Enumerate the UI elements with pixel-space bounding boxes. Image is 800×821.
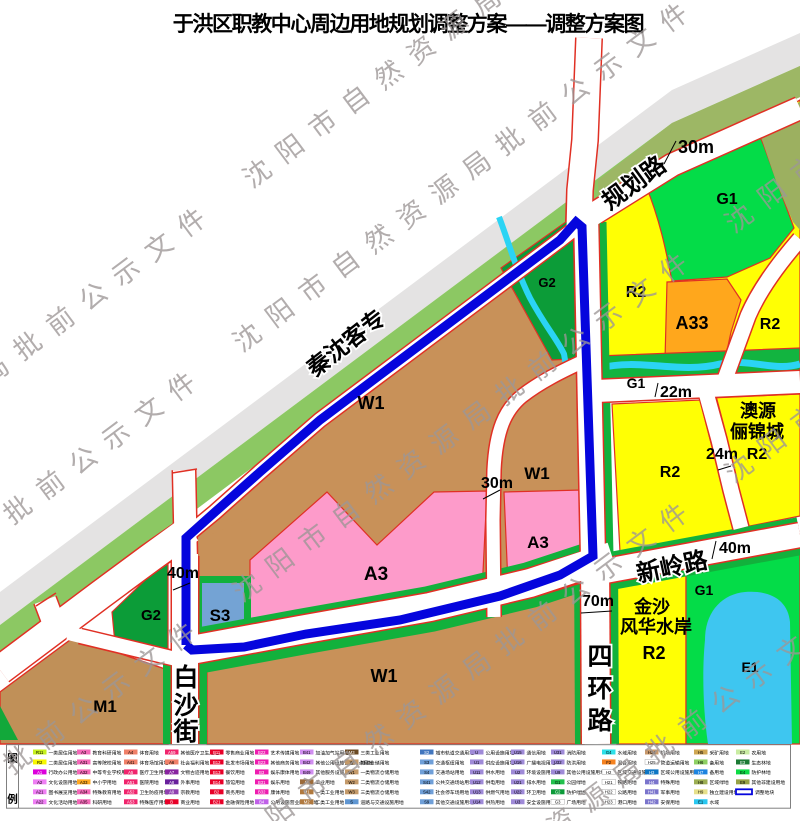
svg-text:供应设施用地: 供应设施用地 [486, 759, 515, 766]
svg-text:B21: B21 [213, 800, 221, 805]
svg-text:U31: U31 [554, 750, 562, 755]
svg-text:U12: U12 [473, 780, 481, 785]
svg-text:G2: G2 [555, 790, 561, 795]
svg-text:公园绿地: 公园绿地 [567, 779, 586, 786]
svg-text:文化活动用地: 文化活动用地 [49, 799, 78, 806]
svg-text:外事用地: 外事用地 [181, 779, 200, 786]
svg-text:教育科研用地: 教育科研用地 [93, 749, 122, 756]
svg-text:区域绿地: 区域绿地 [710, 779, 729, 786]
svg-text:H9: H9 [698, 790, 704, 795]
svg-text:G1: G1 [555, 780, 561, 785]
svg-text:A3: A3 [81, 750, 87, 755]
svg-text:澳源: 澳源 [740, 400, 776, 421]
svg-text:U13: U13 [473, 790, 481, 795]
svg-text:采矿用地: 采矿用地 [710, 749, 729, 756]
svg-text:A52: A52 [127, 790, 135, 795]
svg-text:三类物流仓储用地: 三类物流仓储用地 [361, 789, 400, 796]
svg-text:零售商业用地: 零售商业用地 [226, 749, 255, 756]
svg-text:E1: E1 [698, 800, 704, 805]
svg-text:S42: S42 [423, 790, 431, 795]
svg-text:U2: U2 [515, 770, 521, 775]
svg-text:供电用地: 供电用地 [486, 779, 505, 786]
svg-text:商业用地: 商业用地 [181, 799, 200, 806]
svg-text:30m: 30m [678, 137, 714, 157]
svg-text:E9: E9 [740, 780, 746, 785]
svg-text:S41: S41 [423, 780, 431, 785]
svg-text:R2: R2 [660, 464, 681, 481]
svg-text:宗教用地: 宗教用地 [181, 789, 200, 796]
svg-text:B14: B14 [213, 780, 221, 785]
svg-text:供燃气用地: 供燃气用地 [486, 789, 510, 796]
svg-text:体育场馆用地: 体育场馆用地 [140, 759, 169, 766]
svg-text:B22: B22 [258, 750, 266, 755]
svg-text:港口用地: 港口用地 [618, 799, 637, 806]
svg-text:A22: A22 [36, 800, 44, 805]
svg-text:卫生防疫用地: 卫生防疫用地 [140, 789, 169, 796]
svg-text:农用地: 农用地 [752, 749, 767, 756]
svg-text:医院用地: 医院用地 [140, 779, 159, 786]
svg-text:A41: A41 [127, 760, 135, 765]
svg-text:R2: R2 [642, 643, 665, 663]
svg-text:文物古迹用地: 文物古迹用地 [181, 769, 210, 776]
svg-text:A33: A33 [80, 780, 88, 785]
svg-text:G2: G2 [141, 607, 161, 624]
svg-text:防洪用地: 防洪用地 [567, 759, 586, 766]
svg-text:R2: R2 [760, 316, 781, 333]
svg-text:30m: 30m [481, 475, 513, 492]
svg-text:独立建设用地: 独立建设用地 [710, 789, 739, 796]
svg-text:B23: B23 [258, 760, 266, 765]
svg-text:A34: A34 [80, 790, 88, 795]
svg-text:其他非建设用地: 其他非建设用地 [752, 779, 786, 786]
svg-text:医疗卫生用地: 医疗卫生用地 [140, 769, 169, 776]
svg-text:S2: S2 [424, 750, 430, 755]
svg-text:防护林地: 防护林地 [752, 769, 771, 776]
svg-text:军事用地: 军事用地 [661, 789, 680, 796]
svg-text:水域: 水域 [710, 799, 720, 806]
svg-text:排水用地: 排水用地 [527, 779, 546, 786]
svg-text:U14: U14 [473, 800, 481, 805]
svg-text:H8: H8 [698, 780, 704, 785]
svg-text:B31: B31 [258, 780, 266, 785]
svg-text:A6: A6 [169, 760, 175, 765]
svg-text:U16: U16 [514, 760, 522, 765]
svg-text:S9: S9 [424, 800, 430, 805]
svg-text:A9: A9 [169, 790, 175, 795]
svg-text:B2: B2 [214, 790, 220, 795]
svg-text:H41: H41 [648, 790, 656, 795]
svg-text:城市轨道交通用地: 城市轨道交通用地 [436, 749, 475, 756]
svg-text:A31: A31 [80, 760, 88, 765]
svg-text:公用设施用地: 公用设施用地 [486, 749, 515, 756]
svg-text:二类居住用地: 二类居住用地 [49, 759, 78, 766]
svg-text:图书展览用地: 图书展览用地 [49, 789, 78, 796]
svg-text:通信用地: 通信用地 [527, 749, 546, 756]
svg-text:例: 例 [7, 793, 18, 806]
svg-text:U32: U32 [554, 760, 562, 765]
svg-text:B: B [170, 800, 173, 805]
svg-text:科研用地: 科研用地 [93, 799, 112, 806]
svg-text:G4: G4 [606, 750, 612, 755]
svg-text:区域公用设施用地: 区域公用设施用地 [661, 769, 700, 776]
svg-text:金融保险用地: 金融保险用地 [226, 799, 255, 806]
svg-text:S3: S3 [424, 760, 430, 765]
svg-text:A5: A5 [128, 770, 134, 775]
svg-text:路: 路 [587, 707, 613, 735]
svg-text:特殊医疗用地: 特殊医疗用地 [140, 799, 169, 806]
svg-text:特殊教育用地: 特殊教育用地 [93, 789, 122, 796]
svg-text:其他交通设施用地: 其他交通设施用地 [436, 799, 475, 806]
svg-text:特殊用地: 特殊用地 [661, 779, 680, 786]
svg-text:社会福利用地: 社会福利用地 [181, 759, 210, 766]
svg-text:G1: G1 [627, 375, 646, 391]
svg-text:文化设施用地: 文化设施用地 [49, 779, 78, 786]
svg-text:W1: W1 [358, 393, 385, 413]
svg-text:娱乐康体用地: 娱乐康体用地 [271, 769, 300, 776]
svg-text:沙: 沙 [173, 692, 198, 720]
svg-text:S4: S4 [424, 770, 430, 775]
svg-text:其他商务用地: 其他商务用地 [271, 759, 300, 766]
svg-text:B3: B3 [259, 770, 265, 775]
svg-text:H7: H7 [698, 770, 704, 775]
svg-text:备用地: 备用地 [710, 769, 725, 776]
svg-text:U15: U15 [514, 750, 522, 755]
svg-text:体育用地: 体育用地 [140, 749, 159, 756]
svg-text:B13: B13 [213, 770, 221, 775]
svg-text:四: 四 [587, 643, 612, 671]
svg-text:H42: H42 [648, 800, 656, 805]
svg-text:W2: W2 [349, 780, 356, 785]
svg-text:E3: E3 [740, 760, 746, 765]
svg-text:备用地: 备用地 [710, 759, 725, 766]
svg-text:W1: W1 [524, 464, 550, 483]
svg-text:生态林地: 生态林地 [752, 759, 771, 766]
svg-text:A32: A32 [80, 770, 88, 775]
svg-text:A1: A1 [37, 770, 43, 775]
svg-text:B42: B42 [303, 760, 311, 765]
svg-text:消防用地: 消防用地 [567, 749, 586, 756]
svg-text:U: U [475, 750, 478, 755]
svg-text:风华水岸: 风华水岸 [620, 616, 692, 637]
svg-text:街: 街 [172, 717, 198, 746]
svg-text:U3: U3 [515, 800, 521, 805]
svg-text:U9: U9 [555, 770, 561, 775]
svg-text:H5: H5 [698, 750, 704, 755]
svg-text:A2: A2 [37, 780, 43, 785]
svg-text:B4: B4 [259, 800, 265, 805]
svg-text:U11: U11 [473, 770, 481, 775]
svg-text:H4: H4 [649, 780, 655, 785]
svg-text:中小学用地: 中小学用地 [93, 779, 117, 786]
svg-text:A7: A7 [169, 770, 175, 775]
svg-text:餐饮用地: 餐饮用地 [226, 769, 245, 776]
svg-text:H6: H6 [698, 760, 704, 765]
svg-text:B41: B41 [303, 750, 311, 755]
svg-text:社会停车场用地: 社会停车场用地 [436, 789, 470, 796]
svg-text:供热用地: 供热用地 [486, 799, 505, 806]
svg-text:U21: U21 [514, 780, 522, 785]
svg-text:S: S [350, 800, 353, 805]
svg-text:B11: B11 [213, 750, 221, 755]
svg-text:一类物流仓储用地: 一类物流仓储用地 [361, 769, 400, 776]
svg-text:G1: G1 [695, 582, 714, 598]
svg-text:W1: W1 [371, 666, 398, 686]
svg-text:U1: U1 [474, 760, 480, 765]
svg-text:批发市场用地: 批发市场用地 [226, 759, 255, 766]
svg-text:高等院校用地: 高等院校用地 [93, 759, 122, 766]
svg-text:环卫用地: 环卫用地 [527, 789, 546, 796]
svg-text:调整地块: 调整地块 [755, 789, 774, 796]
svg-text:交通场站用地: 交通场站用地 [436, 769, 465, 776]
svg-text:道路与交通设施用地: 道路与交通设施用地 [361, 799, 404, 806]
svg-text:娱乐用地: 娱乐用地 [271, 779, 290, 786]
svg-text:B32: B32 [258, 790, 266, 795]
svg-text:G2: G2 [538, 275, 555, 290]
svg-text:A4: A4 [128, 750, 134, 755]
svg-text:交通枢纽用地: 交通枢纽用地 [436, 759, 465, 766]
svg-text:行政办公用地: 行政办公用地 [49, 769, 78, 776]
svg-text:F2: F2 [606, 760, 612, 765]
svg-text:A8: A8 [169, 780, 175, 785]
svg-text:安保用地: 安保用地 [661, 799, 680, 806]
svg-text:供水用地: 供水用地 [486, 769, 505, 776]
svg-text:金沙: 金沙 [633, 596, 670, 617]
svg-text:白: 白 [173, 663, 198, 692]
svg-text:艺术传媒用地: 艺术传媒用地 [271, 749, 300, 756]
svg-text:22m: 22m [660, 384, 692, 401]
svg-text:A21: A21 [36, 790, 44, 795]
svg-text:公共交通场站用地: 公共交通场站用地 [436, 779, 475, 786]
svg-text:40m: 40m [167, 565, 199, 582]
svg-text:二类物流仓储用地: 二类物流仓储用地 [361, 779, 400, 786]
svg-text:A53: A53 [127, 800, 135, 805]
svg-text:A33: A33 [675, 313, 708, 333]
svg-text:旅馆用地: 旅馆用地 [226, 779, 245, 786]
svg-text:于洪区职教中心周边用地规划调整方案——调整方案图: 于洪区职教中心周边用地规划调整方案——调整方案图 [173, 12, 644, 36]
svg-text:A35: A35 [80, 800, 88, 805]
svg-text:U22: U22 [514, 790, 522, 795]
svg-text:A3: A3 [364, 564, 388, 585]
svg-text:W3: W3 [349, 790, 356, 795]
svg-text:A3: A3 [527, 533, 549, 552]
svg-text:A59: A59 [168, 750, 176, 755]
svg-text:商务用地: 商务用地 [226, 789, 245, 796]
svg-text:E2: E2 [740, 750, 746, 755]
svg-text:B12: B12 [213, 760, 221, 765]
svg-text:A51: A51 [127, 780, 135, 785]
svg-text:环: 环 [587, 675, 612, 703]
svg-text:40m: 40m [719, 540, 751, 557]
svg-text:E4: E4 [740, 770, 746, 775]
